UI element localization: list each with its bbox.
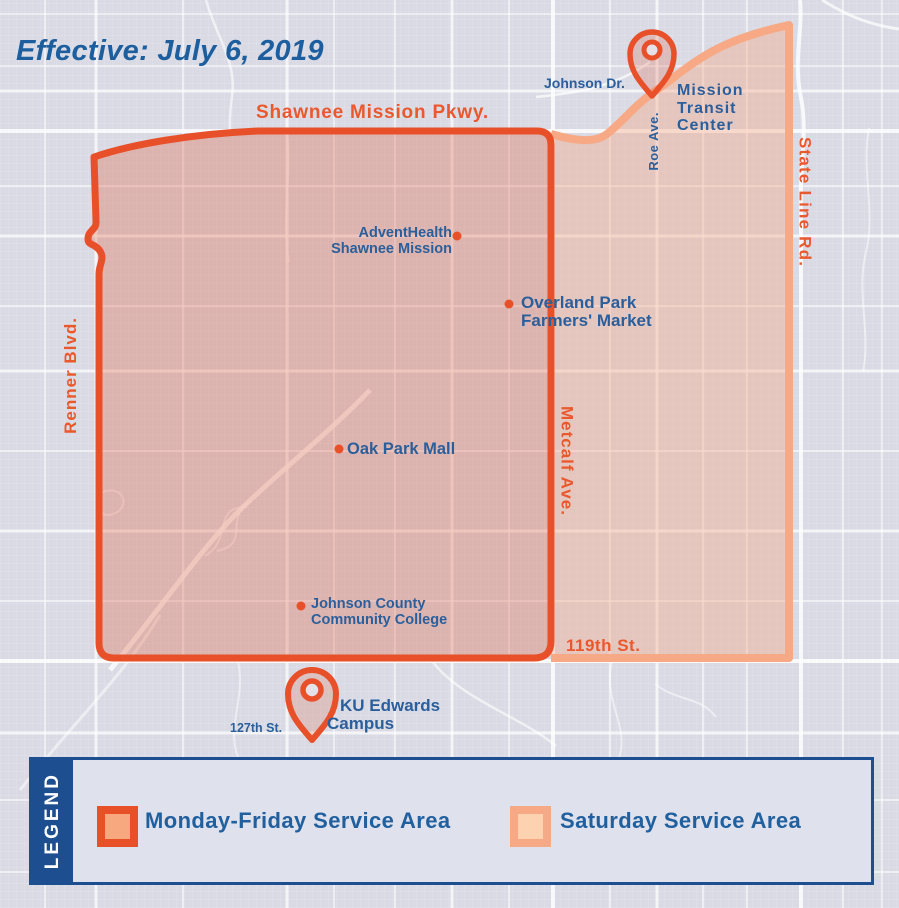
poi-label-jccc: Johnson County Community College [311,597,447,628]
poi-label-oak-park-mall: Oak Park Mall [347,440,455,458]
legend-panel: LEGEND Monday-Friday Service Area Saturd… [29,757,874,885]
legend-heading: LEGEND [42,772,64,869]
poi-label-farmers-market: Overland Park Farmers' Market [521,294,652,329]
legend-heading-tab: LEGEND [32,760,73,882]
saturday-service-area [551,25,789,658]
service-area-map: Effective: July 6, 2019 Shawnee Mission … [0,0,899,908]
poi-label-mission-transit-center: Mission Transit Center [677,82,744,135]
legend-label-saturday: Saturday Service Area [560,808,801,834]
legend-swatch-saturday-icon [510,806,551,847]
poi-label-ku-edwards: KU Edwards Campus [327,697,440,733]
legend-swatch-weekday-icon [97,806,138,847]
street-label-roe-ave: Roe Ave. [647,112,661,171]
street-label-119th-st: 119th St. [566,637,640,656]
street-label-state-line-rd: State Line Rd. [795,137,814,267]
street-label-johnson-dr: Johnson Dr. [544,76,625,91]
legend-label-weekday: Monday-Friday Service Area [145,808,450,834]
street-label-metcalf-ave: Metcalf Ave. [557,406,576,516]
street-label-renner-blvd: Renner Blvd. [62,317,81,434]
oak-park-mall-dot-icon [335,445,344,454]
monday-friday-service-area [88,131,551,658]
street-label-127th-st: 127th St. [230,722,282,736]
street-label-shawnee-mission-pkwy: Shawnee Mission Pkwy. [256,103,489,124]
jccc-dot-icon [297,602,306,611]
farmers-market-dot-icon [505,300,514,309]
effective-date-title: Effective: July 6, 2019 [16,36,324,68]
adventhealth-dot-icon [453,232,462,241]
poi-label-adventhealth: AdventHealth Shawnee Mission [285,226,452,257]
